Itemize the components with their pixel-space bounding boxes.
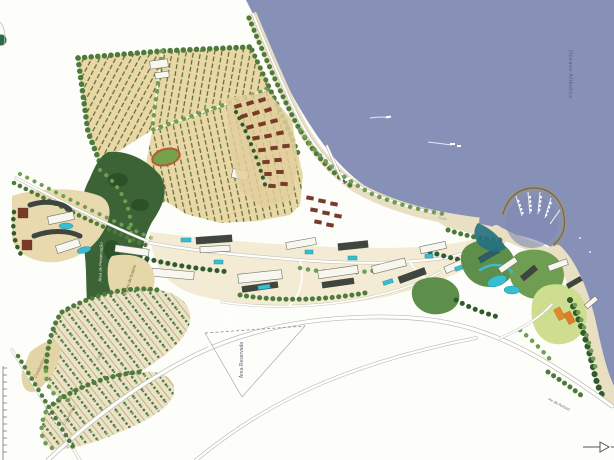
- reserved-area-label: Área Reservada: [238, 342, 245, 378]
- masterplan-map: Oceano Atlântico Área de Preservação Núc…: [0, 0, 614, 460]
- masterplan-svg: Oceano Atlântico Área de Preservação Núc…: [0, 0, 614, 460]
- ocean-label: Oceano Atlântico: [567, 50, 573, 99]
